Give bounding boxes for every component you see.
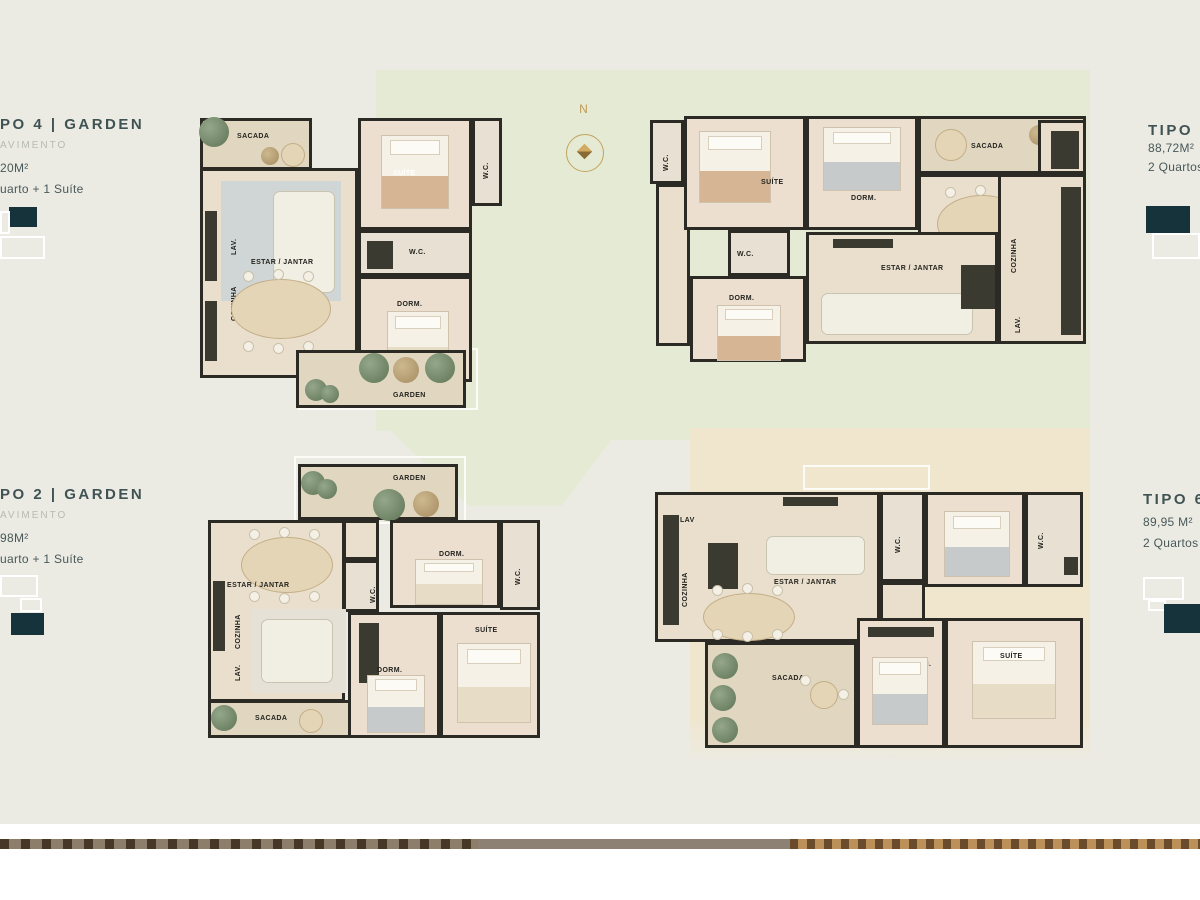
keyplan-tipo6-icon (1143, 575, 1200, 635)
kitchen-island (708, 543, 738, 589)
chair (742, 583, 753, 594)
room-label: SACADA (237, 133, 269, 140)
room-label: COZINHA (1011, 238, 1018, 273)
tv-panel (783, 497, 838, 506)
facade-slats-left (0, 839, 478, 849)
kitchen-counter (213, 581, 225, 651)
plant (413, 491, 439, 517)
plant (712, 717, 738, 743)
panel-tipo2-title: PO 2 | GARDEN (0, 486, 144, 503)
kitchen-counter (205, 211, 217, 281)
room-label: ESTAR / JANTAR (774, 579, 837, 586)
tv-panel (833, 239, 893, 248)
plant (710, 685, 736, 711)
chair (279, 593, 290, 604)
plant (373, 489, 405, 521)
panel-tipo8-area: 88,72M² (1148, 141, 1194, 155)
bed (415, 559, 483, 605)
chair (772, 585, 783, 596)
compass-north-label: N (560, 102, 608, 116)
chair (838, 689, 849, 700)
sofa (766, 536, 865, 575)
panel-tipo4-program: uarto + 1 Suíte (0, 182, 84, 196)
room-label: SUÍTE (761, 179, 784, 186)
room-dorm: DORM. (806, 116, 918, 230)
room-kitchen: COZINHA LAV. (998, 174, 1086, 344)
room-dorm: DORM. (857, 618, 945, 748)
bed (367, 675, 425, 733)
room-dorm: DORM. (348, 612, 440, 738)
room-label: LAV (680, 517, 695, 524)
room-label: DORM. (729, 295, 754, 302)
room-wc: W.C. (343, 560, 379, 612)
room-living: ESTAR / JANTAR (806, 232, 998, 344)
room-label: W.C. (1038, 532, 1045, 549)
room-wc: W.C. (358, 230, 472, 276)
balcony-table (810, 681, 838, 709)
room-garden: GARDEN (296, 350, 466, 408)
keyplan-tipo4-icon (0, 205, 60, 260)
room-label: COZINHA (682, 572, 689, 607)
plant (425, 353, 455, 383)
room-dorm: DORM. (390, 520, 500, 608)
room-label: ESTAR / JANTAR (251, 259, 314, 266)
facade-slats-right (790, 839, 1200, 849)
balcony-table (281, 143, 305, 167)
sofa (261, 619, 333, 683)
chair (945, 187, 956, 198)
room-label: W.C. (409, 249, 426, 256)
room-label: W.C. (737, 251, 754, 258)
panel-tipo2-program: uarto + 1 Suíte (0, 552, 84, 566)
appliance (1051, 131, 1079, 169)
chair (800, 675, 811, 686)
keyplan-tipo8-icon (1146, 204, 1200, 262)
bed (944, 511, 1010, 577)
panel-tipo2-area: 98M² (0, 531, 29, 545)
room-wc: W.C. (650, 120, 684, 184)
chair (279, 527, 290, 538)
facade-strip (0, 839, 1200, 849)
chair (772, 629, 783, 640)
room-label: DORM. (397, 301, 422, 308)
compass-icon: N (560, 102, 608, 182)
panel-tipo4-subtitle: AVIMENTO (0, 140, 67, 151)
room-sacada: SACADA (208, 700, 355, 738)
room-sacada: SACADA (200, 118, 312, 170)
kitchen-island (961, 265, 995, 309)
plant (321, 385, 339, 403)
room-label: DORM. (377, 667, 402, 674)
panel-tipo6-title: TIPO 6 (1143, 491, 1200, 508)
bed (872, 657, 928, 725)
room-suite: SUÍTE (358, 118, 472, 230)
room-utility (1038, 120, 1086, 174)
chair (309, 591, 320, 602)
bed (717, 305, 781, 361)
room-wc: W.C. (500, 520, 540, 610)
room-label: SACADA (255, 715, 287, 722)
kitchen-counter (1061, 187, 1081, 335)
plant (317, 479, 337, 499)
room-suite: SUÍTE (945, 618, 1083, 748)
chair (712, 585, 723, 596)
room-living: LAV. COZINHA ESTAR / JANTAR (200, 168, 358, 378)
room-label: SUÍTE (475, 627, 498, 634)
chair (975, 185, 986, 196)
plant (199, 117, 229, 147)
room-label: SUÍTE (393, 170, 416, 177)
room-wc: W.C. (472, 118, 502, 206)
kitchen-counter (205, 301, 217, 361)
room-wc: W.C. (880, 492, 925, 582)
room-label: W.C. (483, 162, 490, 179)
wc-fixture (1064, 557, 1078, 575)
bed (823, 127, 901, 191)
plant (359, 353, 389, 383)
balcony-table (299, 709, 323, 733)
chair (742, 631, 753, 642)
room-label: LAV. (235, 665, 242, 681)
floorplan-sheet: { "page": { "compass_label": "N", "color… (0, 0, 1200, 900)
room-label: LAV. (231, 239, 238, 255)
room-wc: W.C. (728, 230, 790, 276)
floorplan-tipo8: W.C. SUÍTE DORM. SACADA COZINHA LAV. (650, 112, 1086, 362)
wardrobe (359, 623, 379, 683)
bed (457, 643, 531, 723)
room-label: COZINHA (235, 614, 242, 649)
room-label: LAV. (1015, 317, 1022, 333)
panel-tipo2-subtitle: AVIMENTO (0, 510, 67, 521)
room-living: ESTAR / JANTAR COZINHA LAV. (208, 520, 345, 702)
room-suite: SUÍTE (440, 612, 540, 738)
panel-tipo6-area: 89,95 M² (1143, 515, 1193, 529)
room-label: W.C. (663, 154, 670, 171)
balcony-table (935, 129, 967, 161)
room-label: W.C. (515, 568, 522, 585)
floorplan-tipo6: LAV COZINHA ESTAR / JANTAR W.C. DORM. W.… (645, 478, 1092, 762)
wardrobe (868, 627, 934, 637)
wc-fixture (367, 241, 393, 269)
room-dorm: DORM. (690, 276, 806, 362)
chair (249, 529, 260, 540)
chair (712, 629, 723, 640)
chair (273, 343, 284, 354)
kitchen-counter (663, 515, 679, 625)
room-label: W.C. (895, 536, 902, 553)
chair (249, 591, 260, 602)
room-label: W.C. (370, 586, 377, 603)
room-wc: W.C. (1025, 492, 1083, 587)
dining-table (231, 279, 331, 339)
room-label: SACADA (971, 143, 1003, 150)
plant (393, 357, 419, 383)
room-dorm: DORM. (925, 492, 1025, 587)
panel-tipo8-program: 2 Quartos (1148, 160, 1200, 174)
room-sacada: SACADA (705, 642, 857, 748)
plant (211, 705, 237, 731)
room-hall (343, 520, 379, 560)
chair (243, 341, 254, 352)
panel-tipo8-title: TIPO 8 (1148, 122, 1200, 139)
sofa (821, 293, 973, 335)
room-label: GARDEN (393, 392, 426, 399)
room-label: ESTAR / JANTAR (881, 265, 944, 272)
plant (712, 653, 738, 679)
panel-tipo4-title: PO 4 | GARDEN (0, 116, 144, 133)
bed (699, 131, 771, 203)
room-label: DORM. (439, 551, 464, 558)
chair (273, 269, 284, 280)
panel-tipo4-area: 20M² (0, 161, 29, 175)
chair (309, 529, 320, 540)
chair (243, 271, 254, 282)
chair (303, 271, 314, 282)
room-label: ESTAR / JANTAR (227, 582, 290, 589)
floorplan-tipo2: GARDEN DORM. W.C. W.C. ESTAR / JANTAR CO… (200, 462, 545, 738)
room-garden: GARDEN (298, 464, 458, 520)
panel-tipo6-program: 2 Quartos (1143, 536, 1198, 550)
room-label: DORM. (851, 195, 876, 202)
keyplan-tipo2-icon (0, 573, 60, 637)
room-label: GARDEN (393, 475, 426, 482)
room-label: SUÍTE (1000, 653, 1023, 660)
floorplan-tipo4: SACADA LAV. COZINHA ESTAR / JANTAR SUÍTE… (196, 112, 506, 410)
room-social: LAV COZINHA ESTAR / JANTAR (655, 492, 880, 642)
room-suite: SUÍTE (684, 116, 806, 230)
plant (261, 147, 279, 165)
facade-solid-mid (478, 839, 790, 849)
